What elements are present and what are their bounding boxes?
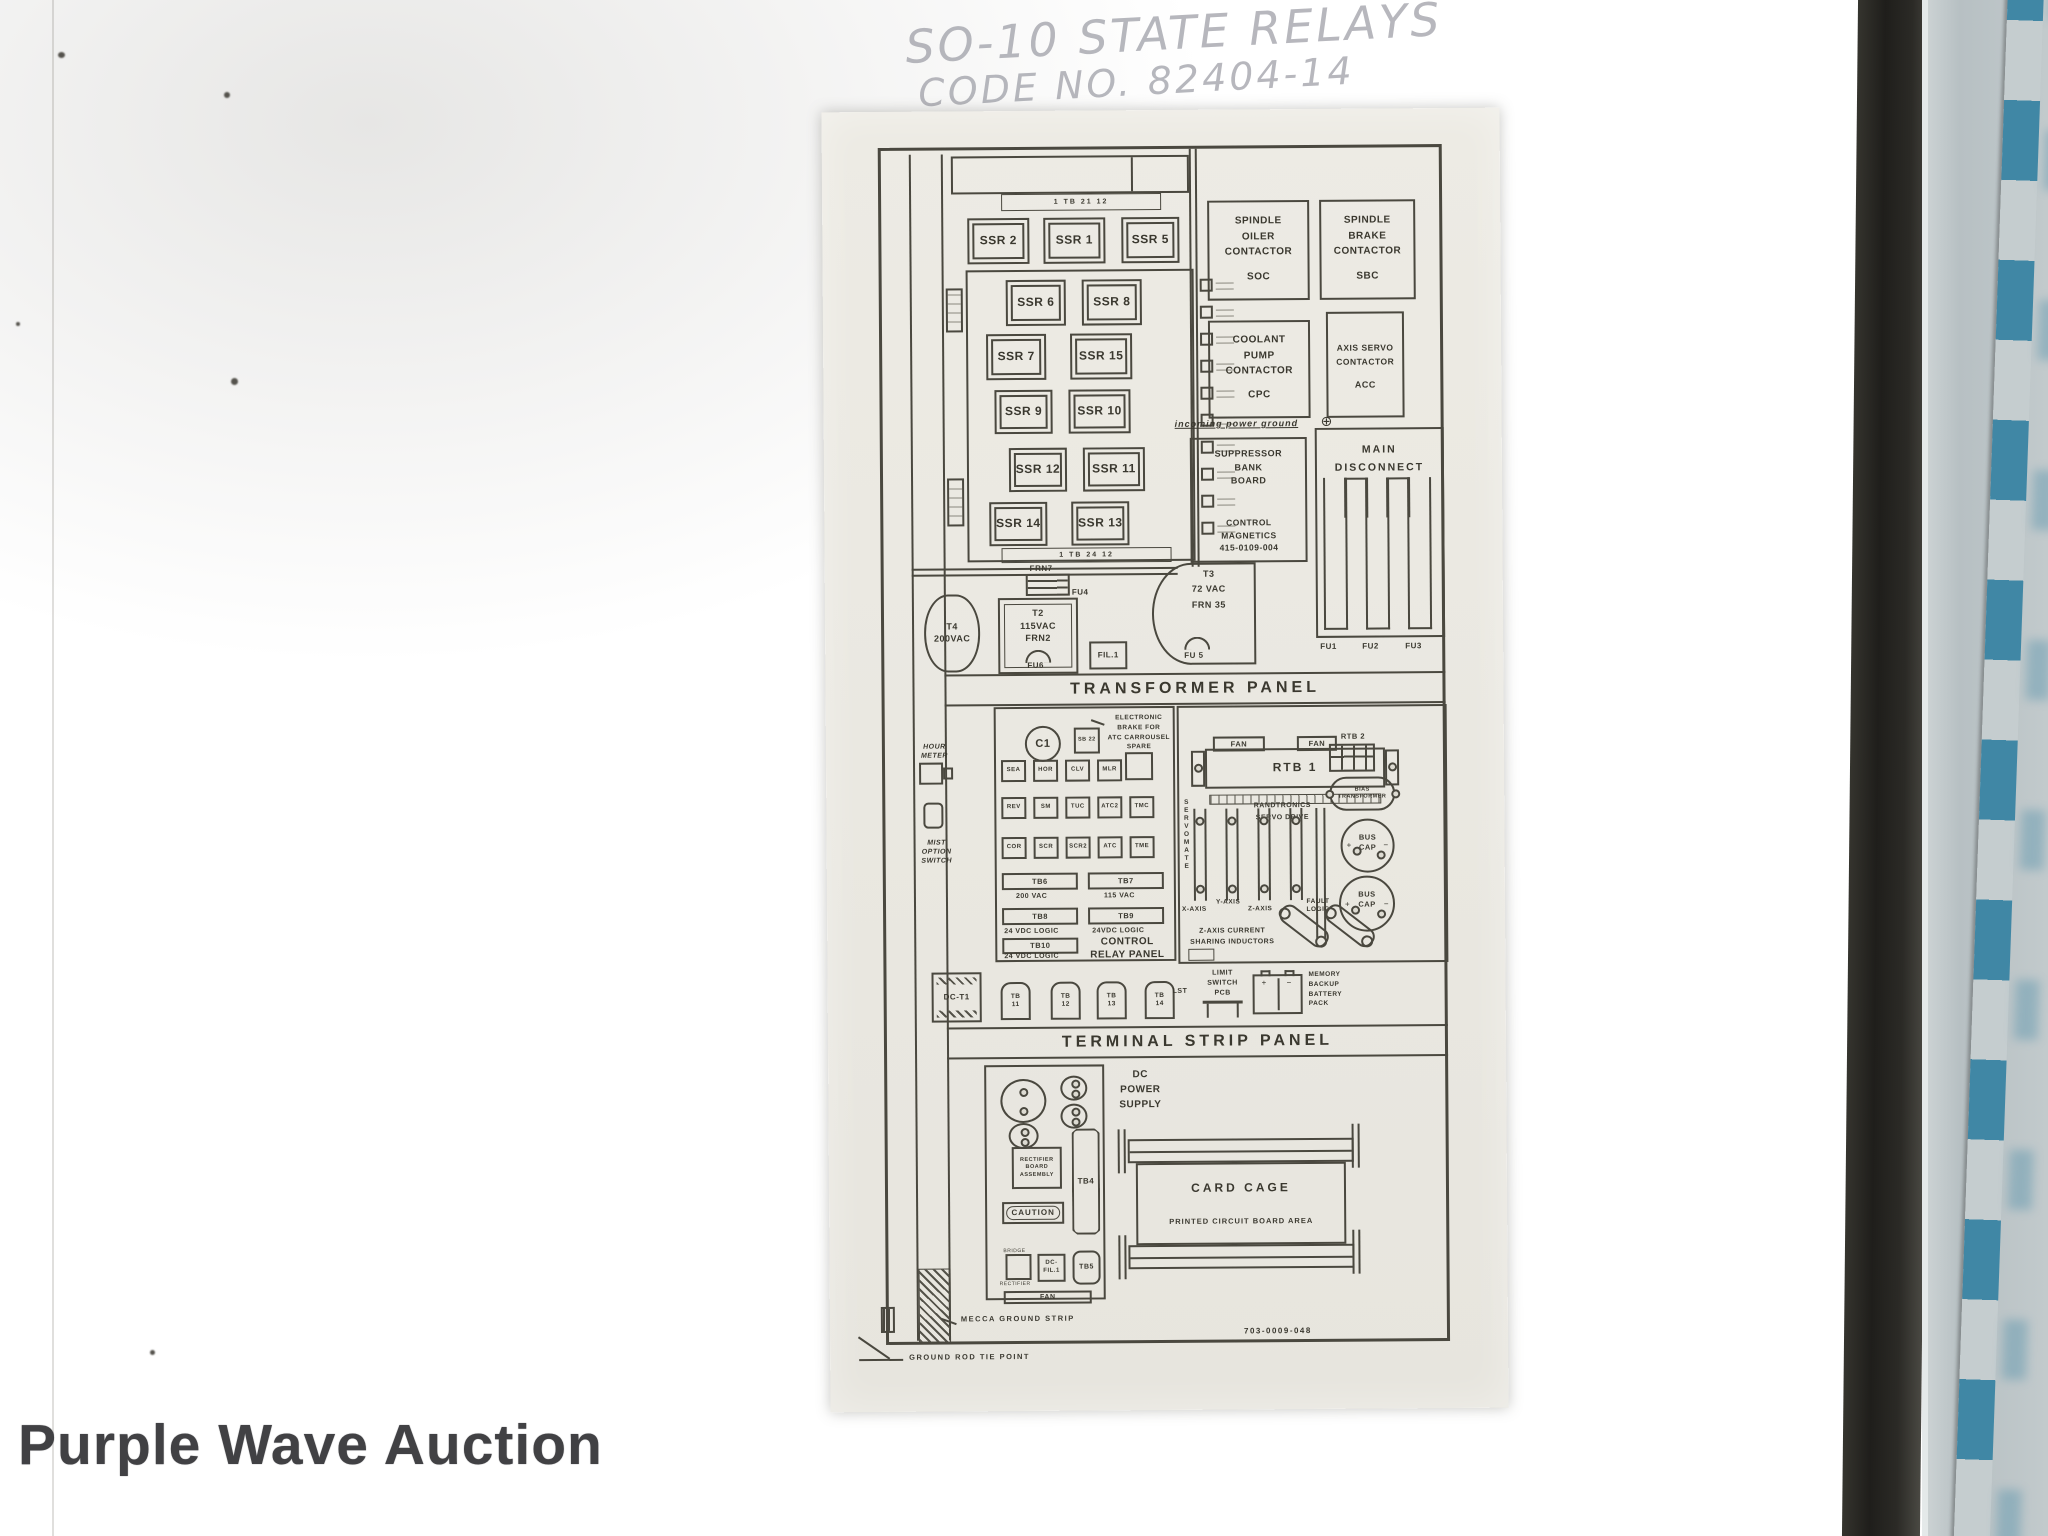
plus-mark: + — [1262, 978, 1267, 988]
lst-label: LST — [1173, 987, 1188, 996]
tb7-strip: TB7 — [1088, 872, 1164, 890]
capacitor-icon — [1009, 1123, 1039, 1149]
screw-icon — [1227, 817, 1236, 826]
tb6-sub: 200 VAC — [1016, 892, 1047, 901]
contactor-label: SPINDLE BRAKE CONTACTOR — [1321, 212, 1413, 259]
fuse-note — [1216, 310, 1234, 317]
mecca-ground-strip-icon — [919, 1269, 952, 1343]
hour-meter-plug — [919, 763, 943, 785]
tb8-sub: 24 VDC LOGIC — [1004, 927, 1059, 936]
card-cage-bracket — [1124, 1235, 1126, 1279]
plus-mark: + — [1347, 841, 1352, 851]
terminal-strip-panel-title: TERMINAL STRIP PANEL — [947, 1024, 1448, 1059]
tb-terminal: TB 11 — [1001, 982, 1031, 1020]
battery-terminal — [1284, 970, 1294, 976]
top-duct-box — [951, 155, 1189, 195]
main-disconnect-label: MAIN DISCONNECT — [1317, 441, 1442, 478]
card-cage-bracket — [1118, 1129, 1120, 1173]
bus-cap-terminal — [1377, 909, 1386, 918]
fu5-label: FU 5 — [1184, 651, 1203, 662]
disconnect-blade — [1344, 478, 1368, 518]
wall-speck — [16, 322, 20, 326]
battery-icon: + − — [1252, 974, 1302, 1014]
card-cage-bracket — [1358, 1230, 1360, 1274]
card-cage-box: CARD CAGE PRINTED CIRCUIT BOARD AREA — [1136, 1162, 1347, 1245]
bus-cap-terminal — [1353, 847, 1362, 856]
minus-mark: − — [1383, 840, 1388, 850]
dc-power-supply-box: RECTIFIER BOARD ASSEMBLY TB4 CAUTION BRI… — [984, 1064, 1106, 1300]
suppressor-label: SUPPRESSOR BANK BOARD — [1192, 447, 1305, 488]
mist-switch-body — [923, 803, 943, 829]
relay: TME — [1130, 836, 1155, 858]
relay: SCR — [1034, 837, 1059, 859]
hinge-highlight — [1922, 0, 1928, 1536]
fuse-label: FU2 — [1362, 642, 1379, 653]
randtronics-servo-drive-label: RANDTRONICS SERVO DRIVE — [1237, 800, 1327, 824]
rtb2-label: RTB 2 — [1341, 732, 1365, 742]
tb21-strip: 1 TB 21 12 — [1001, 193, 1161, 211]
capacitor-icon — [1060, 1104, 1087, 1129]
screw-icon — [1291, 816, 1300, 825]
relay: ATC — [1098, 836, 1123, 858]
fil1-box: FIL.1 — [1089, 641, 1127, 669]
hour-meter-label: HOUR METER — [921, 743, 948, 761]
caution-badge: CAUTION — [1002, 1202, 1064, 1224]
tb8-strip: TB8 — [1002, 908, 1078, 926]
ssr-relay: SSR 7 — [986, 334, 1046, 380]
fan-bar: FAN — [1004, 1291, 1092, 1305]
contactor-label: AXIS SERVO CONTACTOR — [1328, 341, 1402, 369]
wall-speck — [224, 92, 230, 98]
ssr-relay: SSR 5 — [1121, 217, 1179, 263]
spare-label: SPARE — [1127, 743, 1151, 752]
tb-terminal: TB 12 — [1051, 982, 1081, 1020]
fuse-item — [1200, 306, 1213, 319]
ssr-relay: SSR 8 — [1082, 279, 1142, 325]
frn7-fuse-stack — [1026, 574, 1070, 596]
wall-speck — [231, 378, 238, 385]
screw-icon — [1195, 817, 1204, 826]
cap-terminal — [1071, 1090, 1080, 1099]
relay: REV — [1001, 797, 1026, 819]
tb-terminal: TB 14 — [1145, 981, 1175, 1019]
ssr-relay: SSR 9 — [994, 390, 1052, 434]
bus-cap-terminal — [1351, 906, 1360, 915]
rectifier-label: RECTIFIER — [1000, 1281, 1031, 1288]
screw-icon — [1194, 764, 1203, 773]
battery-divider — [1278, 978, 1280, 1010]
pcb-area-label: PRINTED CIRCUIT BOARD AREA — [1138, 1216, 1344, 1227]
ssr-left-tab — [947, 478, 964, 526]
part-number: 703-0009-048 — [1244, 1326, 1312, 1337]
ground-rod-icon — [881, 1307, 895, 1333]
limit-switch-pcb-label: LIMIT SWITCH PCB — [1198, 968, 1246, 998]
plus-mark: + — [1345, 900, 1350, 910]
cap-terminal — [1071, 1108, 1080, 1117]
minus-mark: − — [1384, 899, 1389, 909]
screw-icon — [1196, 885, 1205, 894]
ssr-relay: SSR 12 — [1009, 448, 1067, 492]
disconnect-blade — [1386, 477, 1410, 517]
card-cage-bracket — [1118, 1235, 1120, 1279]
fu6-label: FU6 — [1027, 661, 1044, 672]
caution-inner — [1006, 1206, 1060, 1220]
c1-contactor: C1 — [1025, 726, 1061, 762]
screw-icon — [1388, 762, 1397, 771]
screw-icon — [1228, 885, 1237, 894]
mecca-ground-strip-label: MECCA GROUND STRIP — [961, 1314, 1075, 1325]
contactor-label: COOLANT PUMP CONTACTOR — [1210, 332, 1308, 379]
axis-label: Y-AXIS — [1216, 898, 1240, 907]
rail-line — [1130, 1256, 1352, 1260]
bridge-rectifier-box — [1005, 1254, 1031, 1280]
capacitor-icon — [1000, 1079, 1046, 1123]
relay: MLR — [1097, 759, 1122, 781]
suppressor-bank-board-box: SUPPRESSOR BANK BOARD CONTROL MAGNETICS … — [1190, 437, 1308, 563]
t2-label: T2 115VAC FRN2 — [1000, 607, 1076, 645]
sharing-inductors-label: Z-AXIS CURRENT SHARING INDUCTORS — [1182, 926, 1282, 948]
cap-terminal — [1021, 1128, 1030, 1137]
card-cage-bracket — [1358, 1124, 1360, 1168]
axis-label: X-AXIS — [1182, 906, 1207, 915]
disconnect-blade — [1407, 477, 1432, 629]
screw-icon — [1259, 816, 1268, 825]
relay: HOR — [1033, 760, 1058, 782]
card-cage-top-rail — [1128, 1138, 1354, 1164]
pcb-leg — [1207, 1004, 1209, 1018]
relay: SEA — [1001, 760, 1026, 782]
servomate-label: SERVOMATE — [1181, 799, 1190, 871]
incoming-power-ground-note: incoming power ground — [1175, 418, 1299, 431]
ssr-relay: SSR 1 — [1043, 217, 1105, 263]
spare-box — [1125, 752, 1153, 780]
dc-t1-box: DC-T1 — [931, 972, 981, 1022]
fuse-label: FU1 — [1320, 642, 1337, 653]
contactor-abbr: SBC — [1322, 269, 1414, 283]
relay: CLV — [1065, 760, 1090, 782]
relay: TUC — [1065, 797, 1090, 819]
control-relay-panel-label: CONTROL RELAY PANEL — [1082, 935, 1172, 962]
axis-label: Z-AXIS — [1248, 905, 1272, 914]
ssr-relay: SSR 13 — [1071, 501, 1129, 545]
card-cage-label: CARD CAGE — [1138, 1180, 1344, 1197]
tb9-strip: TB9 — [1088, 907, 1164, 925]
bias-transformer: BIAS TRANSFORMER — [1329, 776, 1395, 810]
wall-speck — [150, 1350, 155, 1355]
mist-option-switch-label: MIST OPTION SWITCH — [914, 838, 960, 866]
capacitor-icon — [1060, 1076, 1087, 1101]
top-duct-divider — [1131, 157, 1133, 191]
tb7-sub: 115 VAC — [1104, 891, 1135, 900]
tb9-sub: 24VDC LOGIC — [1092, 926, 1144, 935]
frn7-label: FRN7 — [1030, 564, 1053, 575]
ssr-relay: SSR 10 — [1068, 389, 1130, 433]
left-rail-line — [909, 155, 919, 1341]
panel-layout-sticker: 1 TB 21 12 SSR 2 SSR 1 SSR 5 SSR 6 SSR 8… — [821, 108, 1508, 1413]
battery-terminal — [1260, 970, 1270, 976]
ssr-relay: SSR 14 — [989, 502, 1047, 546]
t3-label: T3 72 VAC FRN 35 — [1164, 570, 1254, 609]
t4-transformer: T4 200VAC — [924, 594, 981, 672]
relay: SCR2 — [1066, 837, 1091, 859]
control-magnetics-label: CONTROL MAGNETICS 415-0109-004 — [1192, 516, 1305, 555]
relay: SM — [1033, 797, 1058, 819]
relay: ATC2 — [1097, 796, 1122, 818]
ground-rod-tie-point-label: GROUND ROD TIE POINT — [909, 1352, 1030, 1363]
small-terminal — [1188, 949, 1214, 961]
ssr-relay: SSR 11 — [1083, 447, 1145, 491]
tb-terminal: TB 13 — [1097, 981, 1127, 1019]
tb10-sub: 24 VDC LOGIC — [1004, 952, 1059, 961]
memory-backup-label: MEMORY BACKUP BATTERY PACK — [1308, 970, 1352, 1009]
relay: TMC — [1129, 796, 1154, 818]
cap-terminal — [1019, 1107, 1028, 1116]
limit-switch-pcb-icon — [1203, 1000, 1243, 1017]
coolant-pump-contactor-box: COOLANT PUMP CONTACTOR CPC — [1208, 320, 1311, 419]
rail-line — [1130, 1150, 1352, 1154]
tb24-strip: 1 TB 24 12 — [1002, 547, 1172, 563]
fu4-label: FU4 — [1072, 588, 1089, 599]
screw-icon — [1325, 790, 1334, 799]
tb5-box: TB5 — [1072, 1250, 1100, 1284]
card-cage-bracket — [1124, 1129, 1126, 1173]
tb4-strip: TB4 — [1072, 1128, 1101, 1234]
leader-line — [859, 1359, 903, 1361]
card-cage-bottom-rail — [1128, 1244, 1354, 1270]
ssr-relay: SSR 2 — [967, 218, 1029, 264]
cap-terminal — [1021, 1138, 1030, 1147]
screw-icon — [1260, 884, 1269, 893]
fuse-label: FU3 — [1405, 641, 1422, 652]
cap-terminal — [1019, 1088, 1028, 1097]
rectifier-board-assembly: RECTIFIER BOARD ASSEMBLY — [1012, 1147, 1062, 1189]
cap-terminal — [1071, 1118, 1080, 1127]
dc-power-supply-label: DC POWER SUPPLY — [1111, 1067, 1169, 1112]
ssr-left-tab — [946, 288, 963, 332]
cap-terminal — [1071, 1080, 1080, 1089]
electronic-brake-note: ELECTRONIC BRAKE FOR ATC CARROUSEL — [1101, 713, 1177, 743]
relay: COR — [1002, 837, 1027, 859]
tb6-strip: TB6 — [1002, 873, 1078, 891]
ssr-relay: SSR 6 — [1006, 280, 1066, 326]
contactor-abbr: ACC — [1328, 379, 1402, 391]
contactor-abbr: CPC — [1210, 388, 1308, 402]
screw-icon — [1391, 789, 1400, 798]
diagram-frame: 1 TB 21 12 SSR 2 SSR 1 SSR 5 SSR 6 SSR 8… — [878, 144, 1450, 1345]
transformer-panel-title: TRANSFORMER PANEL — [944, 671, 1445, 706]
minus-mark: − — [1287, 978, 1292, 988]
axis-servo-contactor-box: AXIS SERVO CONTACTOR ACC — [1326, 311, 1405, 418]
door-seam — [52, 0, 54, 1536]
hour-meter-nub — [943, 767, 953, 779]
piano-hinge — [1922, 0, 2048, 1536]
ssr-relay: SSR 15 — [1070, 333, 1132, 379]
dc-fil1-box: DC- FIL.1 — [1037, 1254, 1065, 1282]
dc-t1-label: DC-T1 — [933, 974, 979, 1020]
spindle-brake-contactor-box: SPINDLE BRAKE CONTACTOR SBC — [1319, 199, 1416, 300]
contactor-label: SPINDLE OILER CONTACTOR — [1209, 213, 1307, 260]
auction-watermark: Purple Wave Auction — [18, 1412, 603, 1478]
pcb-leg — [1237, 1003, 1239, 1017]
bus-cap: BUS CAP + − — [1340, 818, 1394, 872]
contactor-abbr: SOC — [1210, 270, 1308, 284]
spindle-oiler-contactor-box: SPINDLE OILER CONTACTOR SOC — [1207, 200, 1310, 301]
bus-cap-terminal — [1377, 850, 1386, 859]
screw-icon — [1292, 884, 1301, 893]
leader-line — [858, 1336, 890, 1359]
wall-speck — [58, 52, 65, 58]
sb22-breaker: SB 22 — [1074, 727, 1100, 753]
